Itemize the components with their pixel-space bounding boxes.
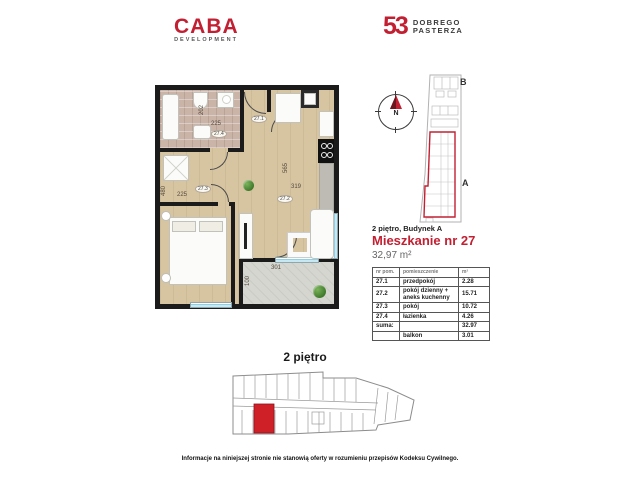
table-row: 27.1 przedpokój 2.28: [373, 277, 490, 287]
compass-icon: N: [378, 94, 414, 130]
sofa-icon: [310, 209, 334, 259]
living-wardrobe-icon: [275, 93, 301, 123]
site-plan: [414, 74, 466, 224]
table-icon: [288, 233, 312, 257]
plant-icon: [313, 285, 326, 298]
washer-drum-icon: [222, 95, 231, 104]
table-row: 27.4 łazienka 4.26: [373, 312, 490, 322]
wall: [231, 202, 235, 304]
rooms-table: nr pom. pomieszczenie m² 27.1 przedpokój…: [372, 267, 490, 341]
fridge-icon: [319, 111, 334, 137]
pillow-icon: [172, 221, 196, 232]
apartment-title: Mieszkanie nr 27: [372, 233, 475, 248]
bedroom-window-icon: [190, 302, 232, 308]
table-row: 27.2 pokój dzienny + aneks kuchenny 15.7…: [373, 287, 490, 303]
dim-living-width: 319: [291, 184, 301, 190]
dim-bath-height: 202: [199, 105, 205, 115]
wall: [160, 202, 218, 206]
dim-balcony-height: 100: [245, 276, 251, 286]
room-tag-bathroom: 27.4: [211, 130, 227, 138]
dim-bedroom-width: 225: [177, 192, 187, 198]
flyer-page: CABA DEVELOPMENT 53 DOBREGO PASTERZA: [0, 0, 640, 480]
developer-subtitle: DEVELOPMENT: [174, 37, 238, 43]
kitchen-counter-icon: [319, 163, 334, 211]
wall: [267, 90, 271, 112]
room-tag-bedroom: 27.3: [195, 185, 211, 193]
dim-balcony-width: 301: [271, 265, 281, 271]
nightstand-icon: [161, 273, 171, 283]
wall: [160, 148, 210, 152]
sink-icon: [193, 125, 211, 139]
room-tag-hall: 27.1: [251, 115, 267, 123]
wall: [240, 90, 244, 152]
plant-icon: [243, 180, 254, 191]
bathtub-icon: [162, 94, 179, 140]
project-name: DOBREGO PASTERZA: [413, 19, 463, 38]
table-row: 27.3 pokój 10.72: [373, 303, 490, 313]
floor-overview-plan: [228, 368, 418, 442]
floor-overview-title: 2 piętro: [230, 350, 380, 364]
tv-icon: [244, 223, 247, 249]
dim-bath-width: 225: [211, 121, 221, 127]
site-section-a-label: A: [462, 178, 469, 188]
dim-living-height: 565: [283, 163, 289, 173]
room-tag-living: 27.2: [277, 195, 293, 203]
hall-wardrobe-icon: [163, 155, 189, 181]
cabinet-icon: [304, 93, 316, 105]
dim-bedroom-height: 480: [161, 186, 167, 196]
apartment-floorplan: 202 225 480 225 565 319 301 100 27.1 27.…: [155, 85, 339, 309]
highlighted-unit: [254, 404, 274, 433]
footer-disclaimer: Informacje na niniejszej stronie nie sta…: [0, 456, 640, 462]
apartment-area: 32,97 m²: [372, 250, 411, 261]
compass-north-label: N: [378, 110, 414, 117]
site-section-b-label: B: [460, 77, 467, 87]
pillow-icon: [199, 221, 223, 232]
table-header-nr: nr pom.: [373, 268, 400, 278]
nightstand-icon: [161, 211, 171, 221]
table-header-area: m²: [459, 268, 490, 278]
table-header-room: pomieszczenie: [400, 268, 459, 278]
developer-logo: CABA DEVELOPMENT: [174, 17, 238, 43]
table-balcony-row: balkon 3.01: [373, 331, 490, 341]
cooktop-icon: [318, 139, 334, 163]
table-sum-row: suma: 32.97: [373, 322, 490, 332]
project-logo: 53 DOBREGO PASTERZA: [383, 15, 463, 38]
wall: [239, 262, 243, 304]
project-number: 53: [383, 15, 407, 38]
apartment-location: 2 piętro, Budynek A: [372, 224, 442, 233]
developer-name: CABA: [174, 17, 238, 37]
